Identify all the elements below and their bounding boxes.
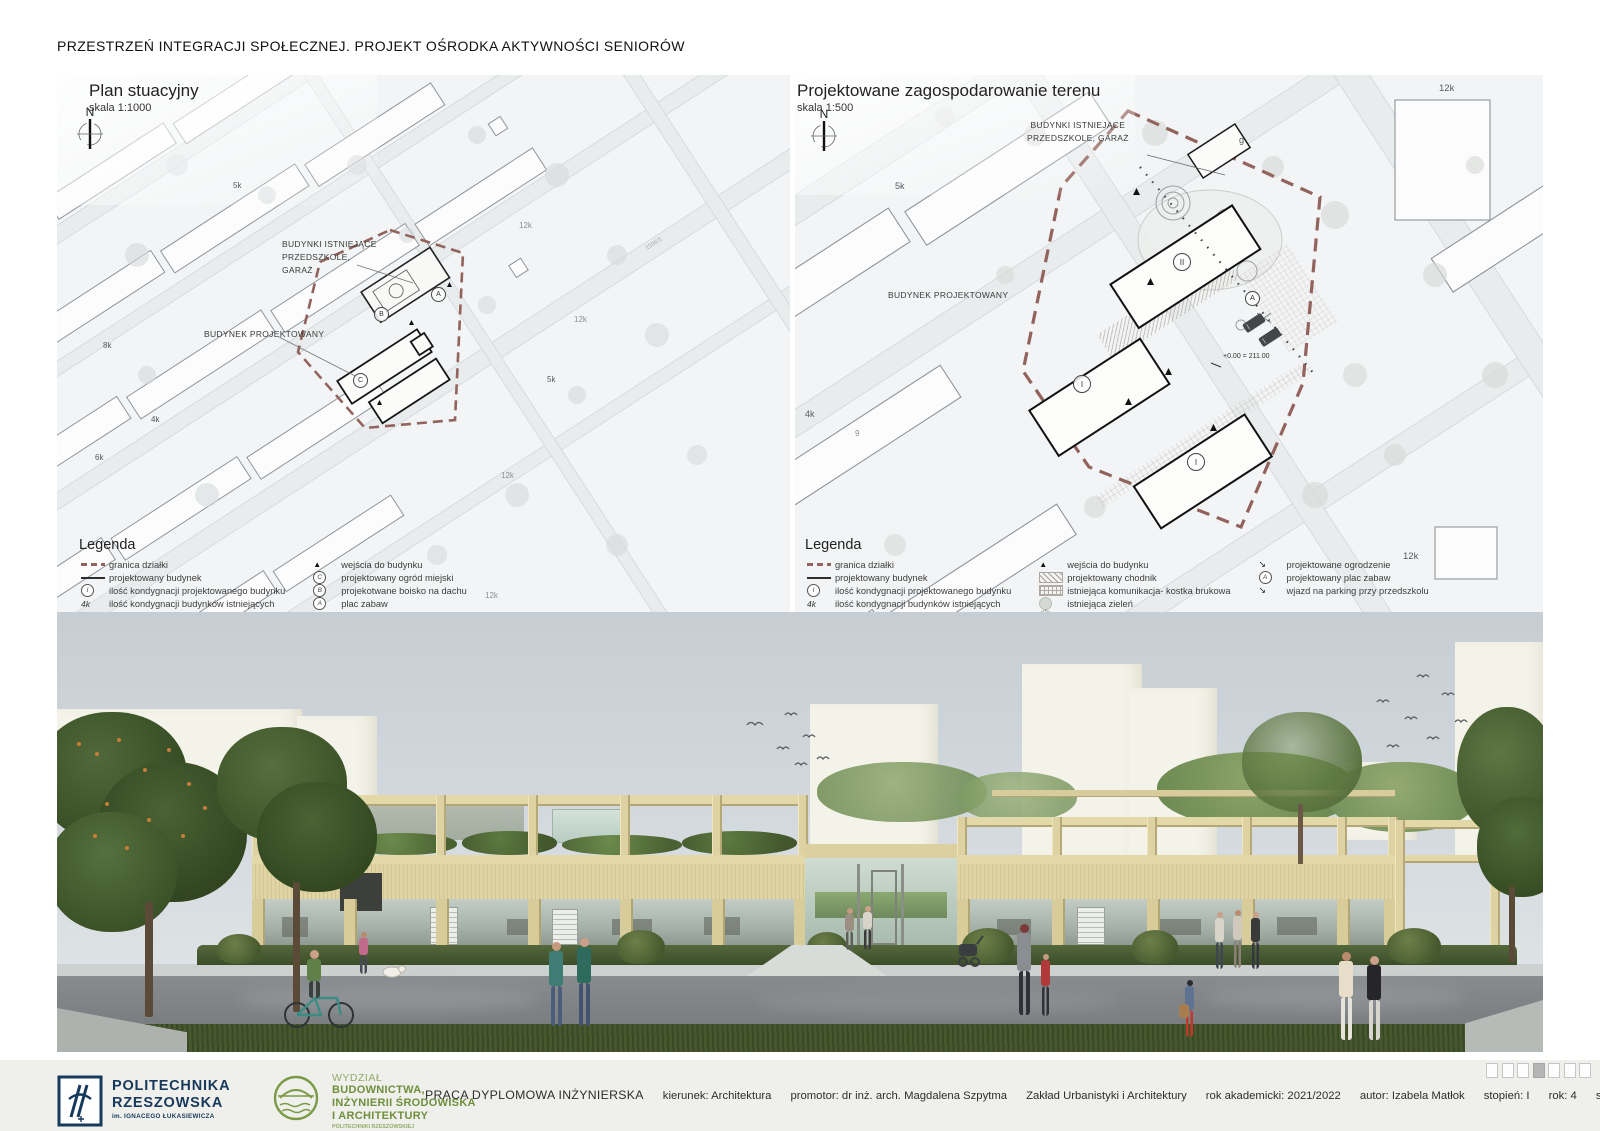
plan-left-title: Plan stuacyjny [89, 81, 199, 101]
person-teen [359, 932, 368, 976]
storey-annotation: 12k [501, 471, 514, 480]
legend-right-col2: ▲wejścia do budynku projektowany chodnik… [1037, 559, 1230, 612]
person-walking [1367, 956, 1381, 1048]
level-annotation: +0.00 = 211.00 [1223, 353, 1270, 360]
pergola-post [712, 795, 722, 863]
interior-shelving [1077, 907, 1105, 945]
label-proposed-building: BUDYNEK PROJEKTOWANY [204, 328, 324, 341]
legend-right: Legenda granica działki projektowany bud… [805, 537, 1429, 612]
garden-badge-icon: C [313, 571, 326, 584]
storey-annotation: 5k [233, 181, 241, 190]
storey-annotation: 4k [151, 415, 159, 424]
thesis-field: kierunek: Architektura [663, 1090, 772, 1102]
playground-badge: A [1245, 291, 1260, 306]
thesis-type: PRACA DYPLOMOWA INŻYNIERSKA [425, 1088, 644, 1102]
legend-right-col1: granica działki projektowany budynek Iil… [805, 559, 1011, 612]
thesis-semester: semestr: 7 [1596, 1090, 1600, 1102]
glazed-entrance-link [805, 844, 957, 945]
label-existing-buildings: BUDYNKI ISTNIEJĄCE PRZEDSZKOLE, GARAŻ [1027, 119, 1129, 145]
midground-tree [1242, 712, 1372, 872]
page-square-6 [1564, 1063, 1576, 1078]
compass-icon [75, 117, 105, 151]
storey-annotation: 6k [95, 453, 103, 462]
page-square-1 [1486, 1063, 1498, 1078]
poster-title: PRZESTRZEŃ INTEGRACJI SPOŁECZNEJ. PROJEK… [57, 38, 685, 54]
plan-right-title-block: Projektowane zagospodarowanie terenu ska… [797, 81, 1100, 114]
person-walking [1233, 910, 1242, 974]
development-plan-drawing [795, 75, 1543, 612]
proposed-greenery-icon [1039, 610, 1052, 612]
label-proposed-building: BUDYNEK PROJEKTOWANY [888, 289, 1008, 302]
building-2-badge: II [1173, 253, 1191, 271]
solid-line-icon [81, 577, 105, 579]
legend-right-col3: ↘projektowane ogrodzenie Aprojektowany p… [1257, 559, 1429, 596]
politechnika-logo [57, 1075, 103, 1127]
page-square-4 [1533, 1063, 1545, 1078]
circled-storeys-icon: I [81, 584, 94, 597]
pagination [1486, 1063, 1591, 1078]
building-1-badge: I [1187, 453, 1205, 471]
storey-annotation: 5k [895, 181, 905, 191]
storey-annotation: 8k [103, 341, 111, 350]
dashed-boundary-icon [807, 563, 831, 566]
compass-icon [809, 119, 839, 153]
playground-badge-icon: A [1259, 571, 1272, 584]
person-walking [1215, 912, 1224, 974]
north-arrow: N [809, 107, 839, 158]
storeys-existing-icon: 4k [81, 599, 90, 609]
legend-left-col1: granica działki projektowany budynek Iil… [79, 559, 285, 612]
architectural-visualization [57, 612, 1543, 1052]
pergola-post [620, 795, 630, 863]
roof-plants [682, 831, 797, 855]
person-cyclist [307, 950, 321, 1008]
grass-strip [57, 1024, 1543, 1052]
bush [617, 930, 665, 964]
thesis-year: rok akademicki: 2021/2022 [1206, 1090, 1341, 1102]
area-badge-c: C [353, 373, 368, 388]
page-square-7 [1579, 1063, 1591, 1078]
bush [1132, 930, 1178, 964]
faculty-logo [272, 1074, 320, 1122]
storey-annotation: 12k [1439, 83, 1454, 94]
plan-right-scale: skala 1:500 [797, 102, 1100, 114]
fence-arrow-icon: ↘ [1259, 560, 1267, 569]
dashed-boundary-icon [81, 563, 105, 566]
thesis-promoter: promotor: dr inż. arch. Magdalena Szpytm… [790, 1090, 1007, 1102]
driveway-arrow-icon: ↘ [1259, 586, 1267, 595]
storeys-existing-icon: 4k [807, 599, 816, 609]
north-arrow: N [75, 105, 105, 156]
bicycle [279, 988, 365, 1028]
plan-left-title-block: Plan stuacyjny skala 1:1000 [89, 81, 199, 114]
storey-annotation: 12k [519, 221, 532, 230]
roof-plants [462, 831, 557, 855]
entrance-triangle-icon: ▲ [1039, 561, 1047, 569]
page-square-5 [1548, 1063, 1560, 1078]
thesis-degree: stopień: I [1484, 1090, 1530, 1102]
person-walking [1251, 912, 1260, 974]
dog [379, 964, 407, 980]
area-badge-a: A [431, 287, 446, 302]
person-at-entrance [863, 906, 872, 952]
page-square-3 [1517, 1063, 1529, 1078]
pergola-post [436, 795, 446, 863]
playground-badge-icon: A [313, 597, 326, 610]
site-plan-map-drawing [57, 75, 790, 612]
stroller [955, 934, 985, 968]
person-walking [577, 938, 591, 1034]
person-grandfather [1017, 924, 1031, 1024]
storey-annotation: 4k [805, 409, 815, 419]
entrance-door [871, 870, 897, 945]
legend-left: Legenda granica działki projektowany bud… [79, 537, 467, 612]
plan-left-scale: skala 1:1000 [89, 102, 199, 114]
paving-grid-icon [1039, 585, 1063, 596]
teddy-bear [1179, 1004, 1189, 1018]
person-at-entrance [845, 908, 854, 952]
interior-shelving [552, 909, 578, 945]
thesis-department: Zakład Urbanistyki i Architektury [1026, 1090, 1187, 1102]
person-child [1041, 954, 1050, 1022]
thesis-info: PRACA DYPLOMOWA INŻYNIERSKA kierunek: Ar… [425, 1088, 1600, 1102]
storey-annotation: 5k [547, 375, 555, 384]
university-name: POLITECHNIKA RZESZOWSKA im. IGNACEGO ŁUK… [112, 1078, 230, 1120]
existing-greenery-icon [1039, 597, 1052, 610]
legend-title: Legenda [805, 537, 1429, 553]
storey-annotation: 9 [855, 429, 859, 438]
sidewalk-hatch-icon [1039, 572, 1063, 583]
site-plan-1-1000: Plan stuacyjny skala 1:1000 N BUDYNKI IS… [57, 75, 790, 612]
plan-right-title: Projektowane zagospodarowanie terenu [797, 81, 1100, 101]
solid-line-icon [807, 577, 831, 579]
page-square-2 [1502, 1063, 1514, 1078]
storey-annotation: 12k [485, 591, 498, 600]
foreground-tree [1457, 707, 1543, 967]
label-existing-buildings: BUDYNKI ISTNIEJĄCE PRZEDSZKOLE, GARAŻ [282, 238, 377, 276]
thesis-study-year: rok: 4 [1549, 1090, 1577, 1102]
person-walking [549, 942, 563, 1034]
bush [1387, 928, 1441, 964]
building-1-badge: I [1073, 375, 1091, 393]
tree-fruits [77, 742, 81, 746]
pergola-post [528, 795, 538, 863]
site-plan-1-500: Projektowane zagospodarowanie terenu ska… [795, 75, 1543, 612]
circled-storeys-icon: I [807, 584, 820, 597]
roof-court-badge-icon: B [313, 584, 326, 597]
legend-left-col2: ▲wejścia do budynku Cprojektowany ogród … [311, 559, 467, 612]
garage-annotation: g [1239, 135, 1244, 145]
legend-title: Legenda [79, 537, 467, 553]
person-walking [1339, 952, 1353, 1048]
entrance-triangle-icon: ▲ [313, 561, 321, 569]
storey-annotation: 12k [574, 315, 587, 324]
thesis-author: autor: Izabela Matłok [1360, 1090, 1465, 1102]
area-badge-b: B [374, 307, 389, 322]
